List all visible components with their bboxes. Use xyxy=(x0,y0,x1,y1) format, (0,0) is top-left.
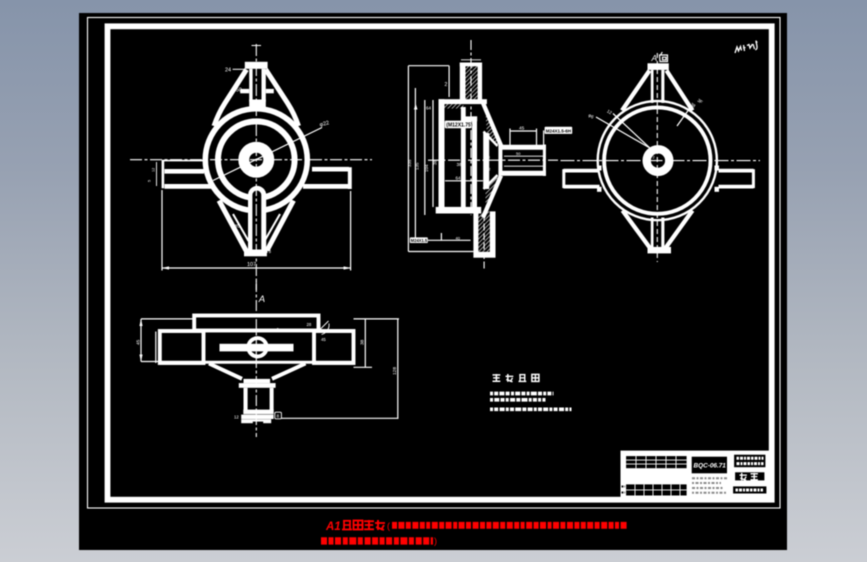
svg-text:2: 2 xyxy=(445,82,448,88)
svg-text:104: 104 xyxy=(424,164,429,172)
svg-text:12: 12 xyxy=(152,168,156,172)
svg-text:28: 28 xyxy=(307,322,312,327)
svg-text:φ50: φ50 xyxy=(233,88,242,94)
svg-text:64: 64 xyxy=(456,176,462,181)
svg-text:335: 335 xyxy=(407,159,412,167)
svg-text:M24X1.5: M24X1.5 xyxy=(411,238,428,243)
svg-text:28: 28 xyxy=(486,156,490,160)
svg-text:45: 45 xyxy=(136,339,142,345)
svg-text:24: 24 xyxy=(225,68,231,74)
svg-text:A: A xyxy=(258,294,265,305)
svg-text:135: 135 xyxy=(415,162,420,170)
svg-text:A1: A1 xyxy=(325,521,341,533)
svg-text:M24X1.5-6H: M24X1.5-6H xyxy=(546,129,571,134)
svg-text:38: 38 xyxy=(360,339,366,345)
svg-text:12: 12 xyxy=(487,168,491,172)
svg-text:A: A xyxy=(651,53,658,63)
svg-text:38: 38 xyxy=(457,162,463,167)
svg-text:φ5: φ5 xyxy=(234,224,240,230)
svg-text:64: 64 xyxy=(426,106,432,111)
svg-text:45: 45 xyxy=(321,337,326,342)
svg-text:5: 5 xyxy=(148,180,152,182)
svg-text:45: 45 xyxy=(519,126,525,132)
svg-text:40: 40 xyxy=(456,235,461,240)
svg-text:(: ( xyxy=(387,521,390,531)
svg-text:50: 50 xyxy=(516,151,521,156)
svg-text:12: 12 xyxy=(234,415,239,420)
svg-text:): ) xyxy=(434,536,437,546)
svg-text:BQC-06.71: BQC-06.71 xyxy=(694,463,727,470)
svg-text:128: 128 xyxy=(392,367,398,375)
svg-text:107: 107 xyxy=(247,262,256,268)
svg-text:(M12X1.75): (M12X1.75) xyxy=(446,123,472,129)
